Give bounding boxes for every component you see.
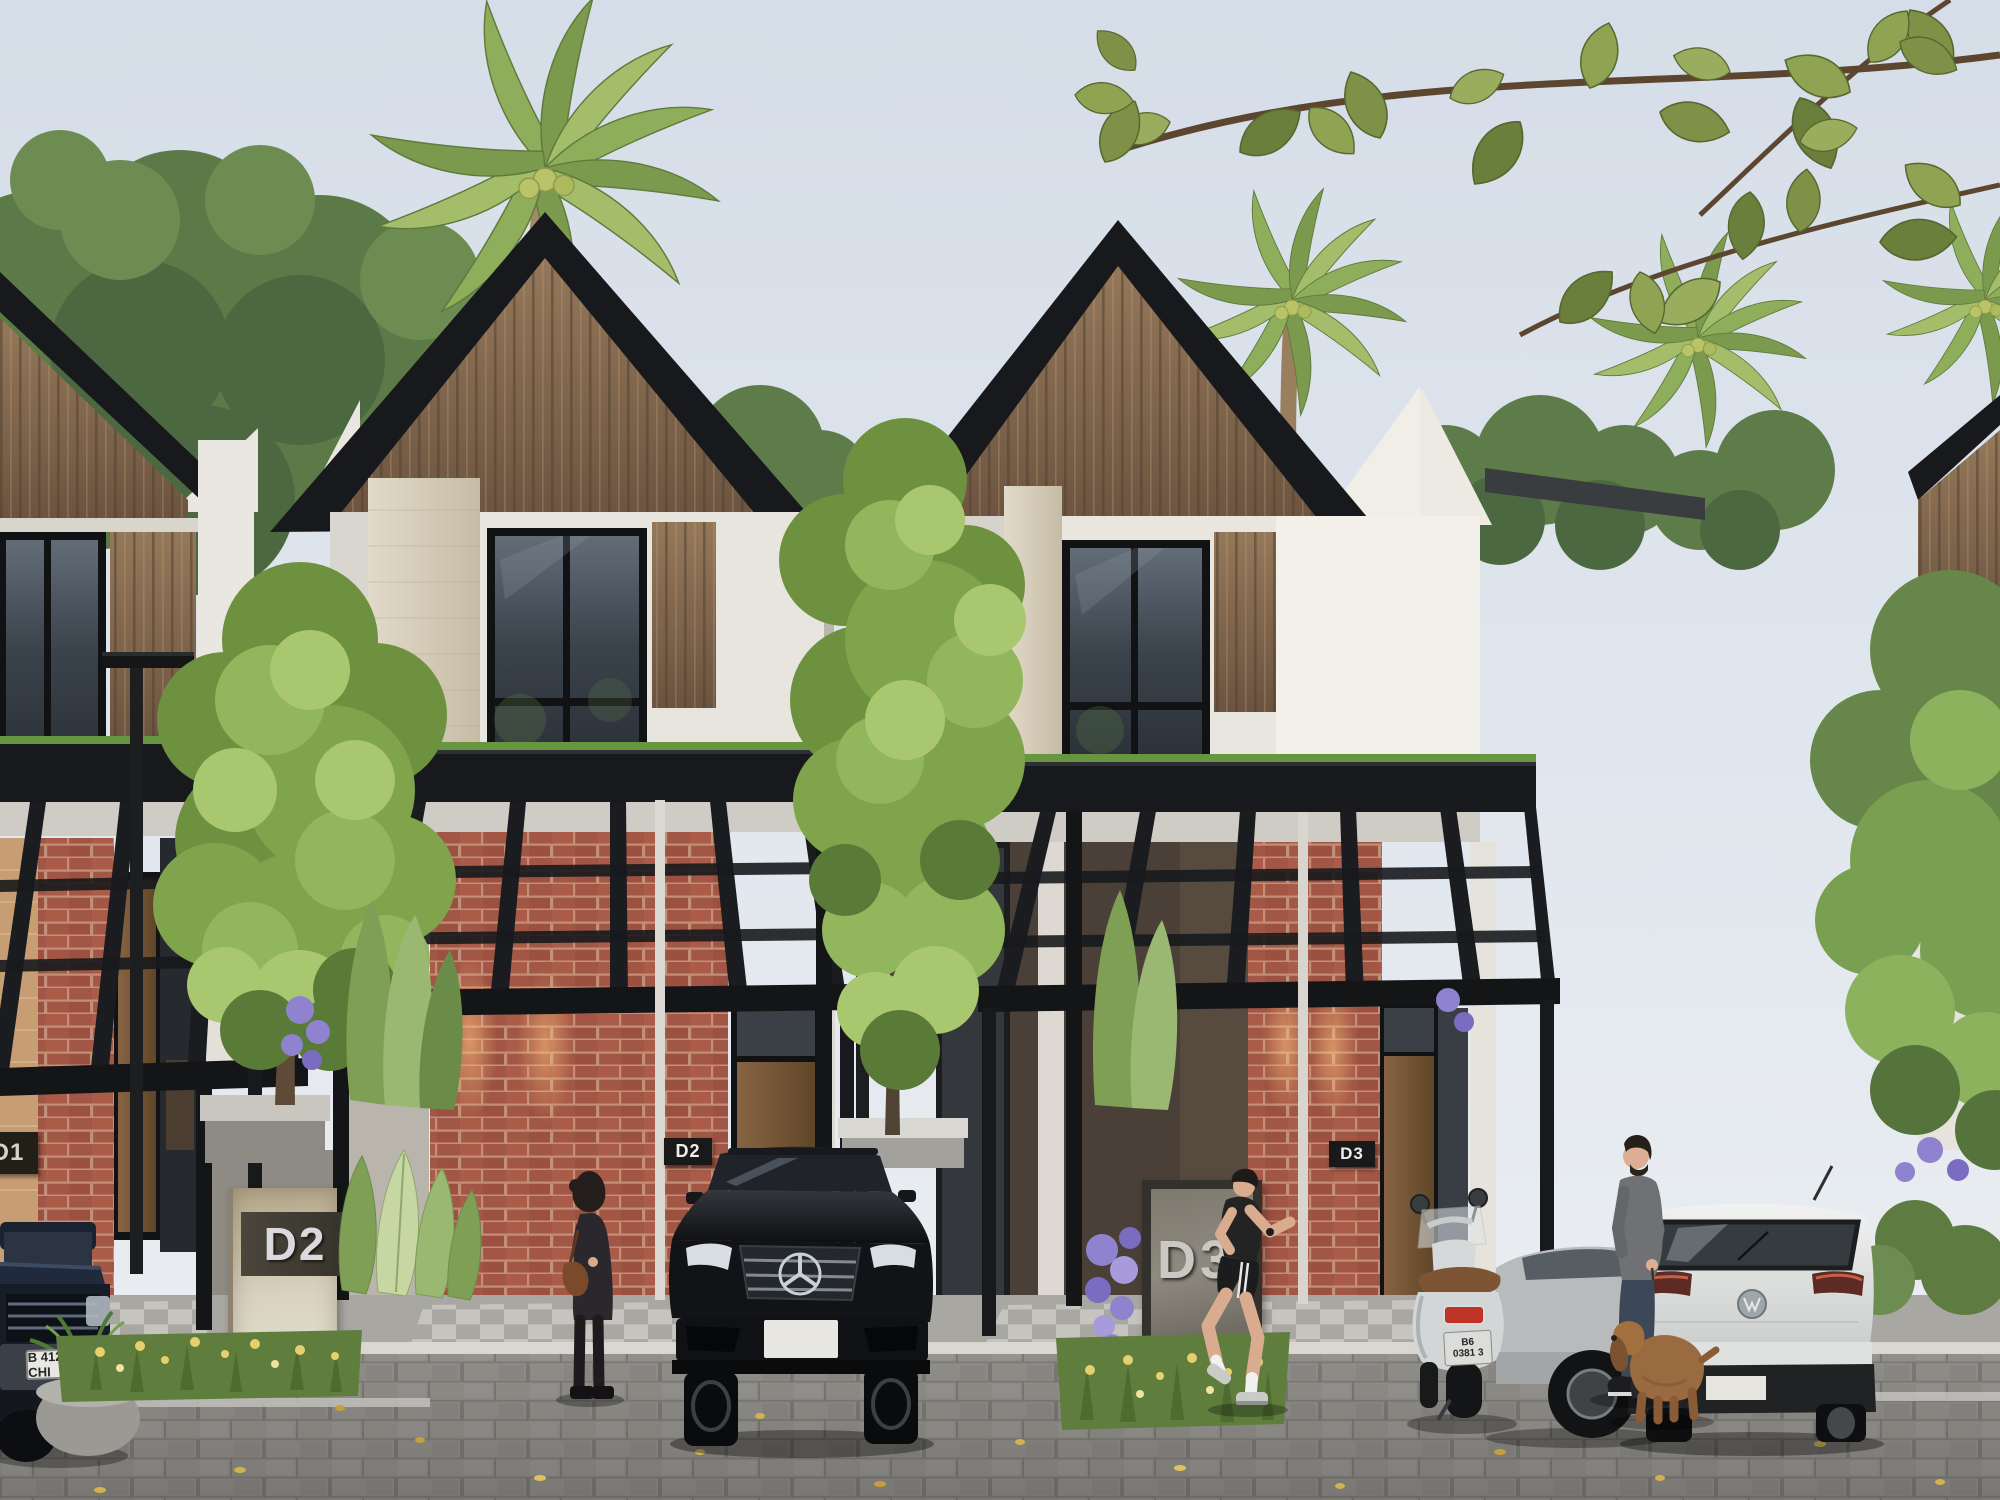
scooter-plate-line1: B6: [1461, 1337, 1474, 1349]
unit-plaque-d3-label: D3: [1340, 1144, 1364, 1164]
carport-post: [1066, 812, 1082, 1306]
wood-slat-screen: [652, 522, 716, 708]
truck-license-plate-text: B 412 CHI: [27, 1348, 86, 1380]
vw-rear-plate: [1706, 1376, 1766, 1400]
mercedes-front-plate: [764, 1320, 838, 1358]
unit-plaque-d2-label: D2: [675, 1141, 700, 1162]
upper-window: [1062, 540, 1210, 772]
entry-door: [1384, 1056, 1434, 1310]
upper-window: [487, 528, 647, 768]
wood-slat-screen: [1214, 532, 1276, 712]
unit-plaque-d1-label: D1: [0, 1139, 24, 1167]
scooter-plate-line2: 0381 3: [1453, 1347, 1484, 1360]
unit-plaque-d1: D1: [0, 1132, 38, 1174]
monument-sign-d2: D2: [228, 1188, 337, 1384]
scooter-license-plate: B6 0381 3: [1443, 1330, 1493, 1366]
unit-plaque-d2: D2: [664, 1138, 712, 1165]
truck-license-plate: B 412 CHI: [25, 1348, 88, 1380]
stage: D1 D2 D3 D2 D3 B 412 CHI B6 0381 3: [0, 0, 2000, 1500]
unit-plaque-d3: D3: [1329, 1141, 1375, 1167]
monument-sign-d3-label: D3: [1157, 1230, 1234, 1290]
vw-badge-icon: [1738, 1290, 1766, 1318]
monument-sign-d2-plate: D2: [241, 1212, 349, 1276]
monument-sign-d3: D3: [1142, 1180, 1262, 1398]
entry-door-assembly: [1380, 1000, 1440, 1316]
monument-sign-d2-label: D2: [264, 1217, 327, 1271]
monument-sign-d3-plate: D3: [1157, 1229, 1234, 1291]
